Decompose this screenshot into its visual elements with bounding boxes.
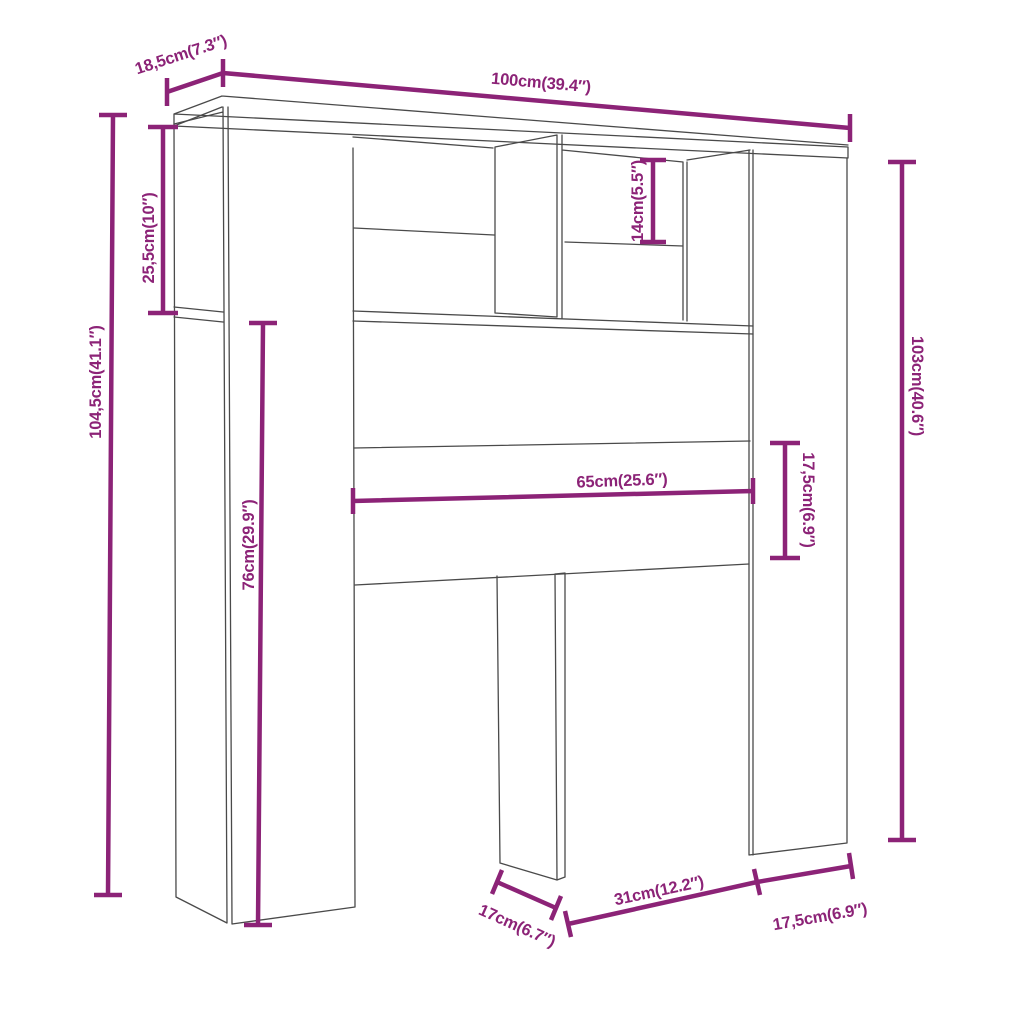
dim-top-depth-label: 18,5cm(7.3″) bbox=[133, 32, 229, 79]
dim-right-gap-width-label: 17,5cm(6.9″) bbox=[771, 900, 868, 934]
dim-total-height-label: 104,5cm(41.1″) bbox=[87, 325, 105, 438]
dim-side-height-line bbox=[888, 162, 916, 840]
dim-top-depth: 18,5cm(7.3″) bbox=[133, 32, 229, 106]
dim-total-width: 100cm(39.4″) bbox=[223, 59, 850, 142]
dim-right-gap-width-line bbox=[757, 853, 853, 882]
dim-top-compartment-height-label: 25,5cm(10″) bbox=[140, 192, 158, 283]
dim-total-height: 104,5cm(41.1″) bbox=[87, 115, 127, 895]
dim-leg-section-height-label: 76cm(29.9″) bbox=[240, 499, 258, 590]
dim-leg-depth-label: 17cm(6.7″) bbox=[476, 901, 558, 951]
middle-leg-outline bbox=[497, 573, 565, 880]
dim-leg-gap-width: 31cm(12.2″) bbox=[565, 869, 760, 937]
dim-cubby-opening-height: 14cm(5.5″) bbox=[629, 160, 666, 242]
dim-rail-height: 17,5cm(6.9″) bbox=[770, 443, 817, 558]
left-column-outline bbox=[174, 107, 355, 924]
dim-total-width-line bbox=[223, 59, 850, 142]
dimension-diagram: 18,5cm(7.3″) 100cm(39.4″) 104,5cm(41.1″)… bbox=[0, 0, 1024, 1024]
dim-leg-section-height-line bbox=[244, 323, 277, 925]
dimension-annotations: 18,5cm(7.3″) 100cm(39.4″) 104,5cm(41.1″)… bbox=[87, 32, 926, 951]
dim-rail-height-label: 17,5cm(6.9″) bbox=[799, 452, 817, 547]
middle-rail-outline bbox=[354, 441, 750, 585]
dim-leg-depth: 17cm(6.7″) bbox=[476, 870, 561, 951]
dim-side-height-label: 103cm(40.6″) bbox=[908, 336, 926, 436]
dim-total-height-line bbox=[94, 115, 127, 895]
dim-top-compartment-height: 25,5cm(10″) bbox=[140, 127, 178, 313]
dim-total-width-label: 100cm(39.4″) bbox=[490, 70, 591, 97]
dim-top-depth-line bbox=[167, 73, 223, 106]
top-compartments-outline bbox=[353, 135, 753, 334]
dim-right-gap-width: 17,5cm(6.9″) bbox=[757, 853, 869, 934]
dim-rail-width-line bbox=[353, 478, 753, 514]
dim-rail-height-line bbox=[770, 443, 800, 558]
dim-leg-gap-width-line bbox=[565, 869, 760, 937]
top-board-outline bbox=[174, 96, 848, 158]
dim-cubby-opening-height-label: 14cm(5.5″) bbox=[629, 160, 647, 242]
dim-rail-width-label: 65cm(25.6″) bbox=[576, 470, 668, 491]
furniture-outline bbox=[174, 96, 848, 924]
right-panel-outline bbox=[749, 150, 847, 855]
dim-rail-width: 65cm(25.6″) bbox=[353, 470, 753, 514]
dim-side-height: 103cm(40.6″) bbox=[888, 162, 926, 840]
dim-leg-section-height: 76cm(29.9″) bbox=[240, 323, 277, 925]
